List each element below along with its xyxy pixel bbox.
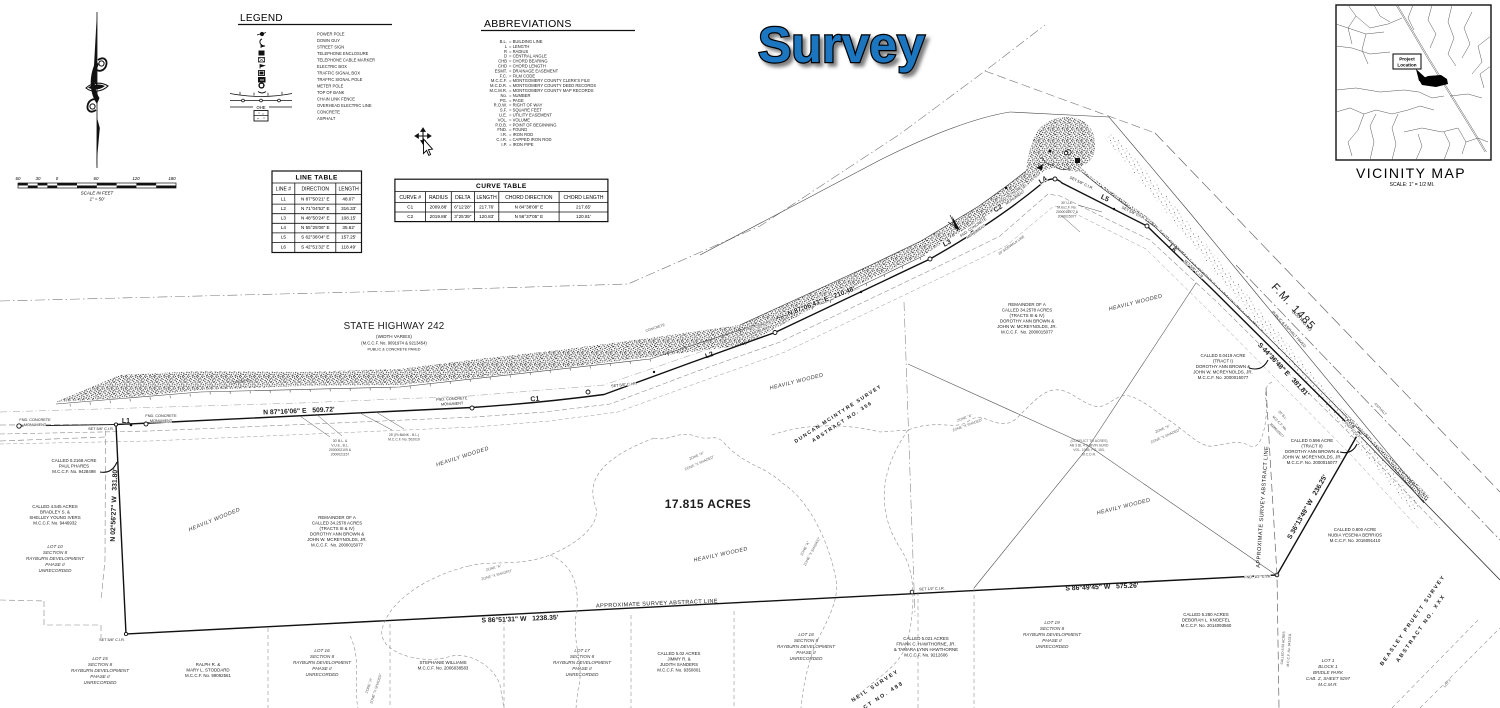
svg-text:V.U.E., B.L.: V.U.E., B.L. xyxy=(331,444,348,448)
svg-text:M.C.C.F. No. 2000015077: M.C.C.F. No. 2000015077 xyxy=(1001,330,1054,335)
svg-text:LINE #: LINE # xyxy=(276,187,292,193)
svg-text:N 55°25'06" E: N 55°25'06" E xyxy=(301,225,330,230)
svg-text:118.49': 118.49' xyxy=(341,244,356,249)
svg-text:REMAINDER OF A: REMAINDER OF A xyxy=(1008,302,1046,307)
svg-text:TOP OF BANK: TOP OF BANK xyxy=(317,90,345,95)
svg-text:(TRACT I): (TRACT I) xyxy=(1213,359,1233,364)
svg-text:TELEPHONE CABLE MARKER: TELEPHONE CABLE MARKER xyxy=(317,58,375,63)
svg-text:SCALE IN FEET: SCALE IN FEET xyxy=(81,191,114,196)
svg-text:M.C.C.F. No. 9350801: M.C.C.F. No. 9350801 xyxy=(657,668,701,673)
svg-text:M.C.C.F. No. 9212606: M.C.C.F. No. 9212606 xyxy=(904,653,948,658)
svg-text:CHAIN LINK FENCE: CHAIN LINK FENCE xyxy=(317,97,355,102)
svg-text:FRANK C. HAWTHORNE, JR.: FRANK C. HAWTHORNE, JR. xyxy=(896,642,955,647)
svg-text:Project: Project xyxy=(1399,57,1415,62)
svg-text:C1: C1 xyxy=(530,396,540,404)
svg-text:CAB. Z, SHEET 9297: CAB. Z, SHEET 9297 xyxy=(1306,676,1351,681)
svg-text:30' U.E.: 30' U.E. xyxy=(1061,201,1073,205)
svg-text:M.C.C.F. No. 2000015077: M.C.C.F. No. 2000015077 xyxy=(311,543,364,548)
svg-text:120.81': 120.81' xyxy=(576,214,591,219)
svg-text:2000002109 &: 2000002109 & xyxy=(329,448,352,452)
svg-text:ZONE "A": ZONE "A" xyxy=(486,564,503,572)
svg-text:CALLED 0.800 ACRE: CALLED 0.800 ACRE xyxy=(1334,527,1377,532)
svg-text:PHASE II: PHASE II xyxy=(1042,638,1062,643)
svg-text:L2: L2 xyxy=(704,351,714,360)
svg-text:AB 3 BL 4 S IRVIN SURD: AB 3 BL 4 S IRVIN SURD xyxy=(1070,444,1109,448)
svg-text:HEAVILY WOODED: HEAVILY WOODED xyxy=(1096,497,1151,516)
svg-text:JOHN W. MCREYNOLDS, JR.: JOHN W. MCREYNOLDS, JR. xyxy=(1282,455,1342,460)
svg-text:BEASLEY PRUETT SURVEY: BEASLEY PRUETT SURVEY xyxy=(1379,574,1447,667)
svg-text:LINE TABLE: LINE TABLE xyxy=(296,175,339,182)
svg-text:L2: L2 xyxy=(281,206,287,211)
svg-text:FND. CONCRETE: FND. CONCRETE xyxy=(436,396,468,402)
svg-text:JUDITH SANDERS: JUDITH SANDERS xyxy=(660,662,698,667)
svg-text:RAYBURN DEVELOPMENT: RAYBURN DEVELOPMENT xyxy=(71,668,130,673)
svg-text:ASPHALT: ASPHALT xyxy=(1373,402,1388,417)
svg-text:25' (R=BANK - B.L.): 25' (R=BANK - B.L.) xyxy=(389,433,419,437)
svg-text:C2: C2 xyxy=(407,214,413,219)
svg-text:FND. 1/2" C.I.R.: FND. 1/2" C.I.R. xyxy=(1244,575,1271,580)
svg-text:RALPH R. &: RALPH R. & xyxy=(196,662,220,667)
svg-text:DOWN GUY: DOWN GUY xyxy=(317,38,340,43)
svg-text:M.C.C.F. No. 2016091410: M.C.C.F. No. 2016091410 xyxy=(1330,538,1381,543)
svg-text:M.C.C.F. No. 2000015077: M.C.C.F. No. 2000015077 xyxy=(1287,460,1338,465)
svg-text:BLOCK 1: BLOCK 1 xyxy=(1318,664,1338,669)
svg-text:UNRECORDED: UNRECORDED xyxy=(84,680,118,685)
svg-text:RAYBURN DEVELOPMENT: RAYBURN DEVELOPMENT xyxy=(26,556,85,561)
svg-text:FND. CONCRETE: FND. CONCRETE xyxy=(145,414,177,418)
svg-text:60: 60 xyxy=(94,176,99,181)
svg-text:M.C.C.F. No. 2000015077: M.C.C.F. No. 2000015077 xyxy=(1198,375,1249,380)
svg-text:DOROTHY ANN BROWN &: DOROTHY ANN BROWN & xyxy=(1285,449,1339,454)
svg-text:RAYBURN DEVELOPMENT: RAYBURN DEVELOPMENT xyxy=(777,644,836,649)
svg-text:S 62°36'04" E: S 62°36'04" E xyxy=(301,235,329,240)
svg-text:48.07': 48.07' xyxy=(342,196,354,201)
svg-text:MONUMENT: MONUMENT xyxy=(24,423,47,427)
svg-text:RAYBURN DEVELOPMENT: RAYBURN DEVELOPMENT xyxy=(293,660,352,665)
svg-text:1" = 50': 1" = 50' xyxy=(90,197,105,202)
svg-text:PUBLIC & CONCRETE PAVED: PUBLIC & CONCRETE PAVED xyxy=(367,348,420,352)
svg-text:N 84°38'08" E: N 84°38'08" E xyxy=(515,205,544,210)
svg-text:M.C.C.F. No.: M.C.C.F. No. xyxy=(1057,206,1076,210)
svg-text:Survey: Survey xyxy=(758,17,925,73)
svg-text:LOT 19: LOT 19 xyxy=(1044,620,1060,625)
svg-text:CALLED 0.0419 ACRE: CALLED 0.0419 ACRE xyxy=(1201,353,1246,358)
svg-text:POWER POLE: POWER POLE xyxy=(317,32,345,37)
svg-text:UNRECORDED: UNRECORDED xyxy=(790,656,824,661)
svg-text:TRAFFIC SIGNAL POLE: TRAFFIC SIGNAL POLE xyxy=(317,77,363,82)
svg-text:CALLED 5.280 ACRES: CALLED 5.280 ACRES xyxy=(1183,612,1228,617)
svg-text:VICINITY MAP: VICINITY MAP xyxy=(1356,165,1466,181)
svg-text:60: 60 xyxy=(16,176,21,181)
svg-text:N 71°04'52" E: N 71°04'52" E xyxy=(301,206,330,211)
svg-text:STREET SIGN: STREET SIGN xyxy=(317,45,344,50)
svg-text:STEPHANIE WILLIAMS: STEPHANIE WILLIAMS xyxy=(419,660,466,665)
svg-text:SET 5/8" C.I.R.: SET 5/8" C.I.R. xyxy=(99,638,125,642)
svg-text:SECTION 8: SECTION 8 xyxy=(1040,626,1065,631)
svg-text:M.C.C.F. No. 9410311: M.C.C.F. No. 9410311 xyxy=(1286,633,1292,667)
svg-text:ABBREVIATIONS: ABBREVIATIONS xyxy=(484,18,572,30)
svg-text:LEGEND: LEGEND xyxy=(240,13,283,24)
svg-text:CALLED 34.2578 ACRES: CALLED 34.2578 ACRES xyxy=(312,521,362,526)
svg-text:2000015077: 2000015077 xyxy=(1058,215,1077,219)
svg-text:L1: L1 xyxy=(122,418,130,425)
svg-text:CALLED 0.596 ACRE: CALLED 0.596 ACRE xyxy=(1291,438,1334,443)
svg-text:PHASE II: PHASE II xyxy=(312,666,332,671)
svg-text:N 02°56'27" W 331.80': N 02°56'27" W 331.80' xyxy=(109,468,120,542)
svg-text:L5: L5 xyxy=(281,235,287,240)
svg-text:157.25': 157.25' xyxy=(341,235,356,240)
svg-text:2000021157: 2000021157 xyxy=(331,453,350,457)
svg-text:DOROTHY ANN BROWN &: DOROTHY ANN BROWN & xyxy=(310,532,364,537)
svg-text:L1: L1 xyxy=(281,196,287,201)
svg-text:SET 5/8" C.I.R.: SET 5/8" C.I.R. xyxy=(88,427,114,431)
svg-text:N 87°50'21" E: N 87°50'21" E xyxy=(301,196,330,201)
svg-text:DOROTHY ANN BROWN &: DOROTHY ANN BROWN & xyxy=(1000,319,1054,324)
svg-text:& TAMARA LYNN HAWTHORNE: & TAMARA LYNN HAWTHORNE xyxy=(894,647,958,652)
svg-text:BRADLEY S. &: BRADLEY S. & xyxy=(40,510,70,515)
svg-text:(TRACTS III & IV): (TRACTS III & IV) xyxy=(1010,313,1045,318)
svg-text:METER POLE: METER POLE xyxy=(317,84,344,89)
svg-text:LOT 15: LOT 15 xyxy=(92,656,108,661)
svg-text:L3: L3 xyxy=(281,216,287,221)
svg-text:OVERHEAD ELECTRIC LINE: OVERHEAD ELECTRIC LINE xyxy=(317,103,372,108)
svg-text:HEAVILY WOODED: HEAVILY WOODED xyxy=(188,507,241,533)
svg-text:6°12'28": 6°12'28" xyxy=(454,205,471,210)
svg-text:APPROXIMATE SURVEY ABSTRACT: APPROXIMATE SURVEY ABSTRACT LINE xyxy=(596,599,718,610)
svg-text:S 36°13'49" W 236.25': S 36°13'49" W 236.25' xyxy=(1286,473,1330,541)
svg-text:MARY L. STODDARD: MARY L. STODDARD xyxy=(186,668,229,673)
svg-text:L4: L4 xyxy=(281,225,287,230)
svg-text:MONUMENT: MONUMENT xyxy=(150,419,173,423)
svg-text:(M.C.C.F. No. 9091974 & 921345: (M.C.C.F. No. 9091974 & 9213454) xyxy=(361,341,427,346)
svg-text:PHASE II: PHASE II xyxy=(572,666,592,671)
svg-text:LENGTH: LENGTH xyxy=(476,195,497,201)
svg-text:I.P.: I.P. xyxy=(501,142,507,147)
svg-text:2000015077 &: 2000015077 & xyxy=(1056,210,1079,214)
svg-text:M.C.C.F. No. 9446932: M.C.C.F. No. 9446932 xyxy=(33,521,77,526)
svg-text:SECTION 8: SECTION 8 xyxy=(570,654,595,659)
svg-text:RAYBURN DEVELOPMENT: RAYBURN DEVELOPMENT xyxy=(553,660,612,665)
svg-text:FND. CONCRETE: FND. CONCRETE xyxy=(19,418,51,422)
svg-text:30' B.L. &: 30' B.L. & xyxy=(333,439,348,443)
svg-text:CONCRETE: CONCRETE xyxy=(645,323,666,333)
svg-text:BRIDLE PARK: BRIDLE PARK xyxy=(1313,670,1344,675)
svg-text:CHORD LENGTH: CHORD LENGTH xyxy=(563,195,603,201)
svg-text:LOT 10: LOT 10 xyxy=(47,544,63,549)
svg-text:108.15': 108.15' xyxy=(341,216,356,221)
svg-text:RADIUS: RADIUS xyxy=(429,195,449,201)
svg-text:HEAVILY WOODED: HEAVILY WOODED xyxy=(769,372,824,391)
svg-text:SCALE: 1" = 1/2 MI.: SCALE: 1" = 1/2 MI. xyxy=(1390,182,1435,188)
svg-text:PHASE II: PHASE II xyxy=(796,650,816,655)
svg-text:M.C.C.F. No. 502019: M.C.C.F. No. 502019 xyxy=(388,438,420,442)
svg-text:ASPHALT: ASPHALT xyxy=(317,116,336,121)
svg-text:N 48°50'24" E: N 48°50'24" E xyxy=(301,216,330,221)
svg-text:180: 180 xyxy=(168,176,176,181)
svg-text:ZONE "X SHADED": ZONE "X SHADED" xyxy=(369,672,383,704)
svg-text:M.C.M.R.: M.C.M.R. xyxy=(1318,682,1337,687)
svg-text:CALLED 5.02 ACRES: CALLED 5.02 ACRES xyxy=(658,651,701,656)
svg-text:DEBORAH L. KNOEFEL: DEBORAH L. KNOEFEL xyxy=(1182,618,1231,623)
svg-text:NUBIA YESENIA BERRIOS: NUBIA YESENIA BERRIOS xyxy=(1328,533,1382,538)
svg-text:LOT 18: LOT 18 xyxy=(798,632,814,637)
svg-text:2009.86': 2009.86' xyxy=(430,205,448,210)
svg-text:UNRECORDED: UNRECORDED xyxy=(566,672,600,677)
svg-text:ELECTRIC BOX: ELECTRIC BOX xyxy=(317,64,347,69)
svg-text:DELTA: DELTA xyxy=(455,195,471,201)
svg-text:Location: Location xyxy=(1397,63,1416,68)
svg-text:SECTION 8: SECTION 8 xyxy=(310,654,335,659)
svg-text:217.65': 217.65' xyxy=(576,205,591,210)
svg-text:SECTION 8: SECTION 8 xyxy=(43,550,68,555)
svg-text:= IRON PIPE: = IRON PIPE xyxy=(509,142,534,147)
svg-text:LOT 2: LOT 2 xyxy=(1443,678,1452,688)
svg-text:APPROXIMATE SURVEY ABSTRACT: APPROXIMATE SURVEY ABSTRACT LINE xyxy=(1256,446,1271,568)
svg-text:17.815 ACRES: 17.815 ACRES xyxy=(665,497,751,511)
svg-text:CALLED 5.021 ACRES: CALLED 5.021 ACRES xyxy=(903,636,948,641)
svg-text:PHASE II: PHASE II xyxy=(45,562,65,567)
svg-text:CALLED 0.2168 ACRE: CALLED 0.2168 ACRE xyxy=(52,458,97,463)
svg-text:217.76': 217.76' xyxy=(479,205,494,210)
svg-text:20' SIDEWALK LINE: 20' SIDEWALK LINE xyxy=(997,234,1025,256)
svg-text:JOHN W. MCREYNOLDS, JR.: JOHN W. MCREYNOLDS, JR. xyxy=(307,537,367,542)
svg-text:(CONFLICT TO ACRES): (CONFLICT TO ACRES) xyxy=(1070,439,1107,443)
svg-text:MONUMENT: MONUMENT xyxy=(441,401,464,406)
svg-text:M.C.D.R.: M.C.D.R. xyxy=(1082,453,1096,457)
svg-text:30: 30 xyxy=(36,176,41,181)
svg-text:REMAINDER OF A: REMAINDER OF A xyxy=(318,515,356,520)
svg-text:TELEPHONE ENCLOSURE: TELEPHONE ENCLOSURE xyxy=(317,51,369,56)
svg-text:(TRACTS III & IV): (TRACTS III & IV) xyxy=(320,526,355,531)
svg-text:SECTION 8: SECTION 8 xyxy=(88,662,113,667)
svg-text:120.83': 120.83' xyxy=(479,214,494,219)
svg-text:120: 120 xyxy=(132,176,140,181)
svg-text:0: 0 xyxy=(56,176,59,181)
svg-text:C1: C1 xyxy=(407,205,413,210)
svg-text:DUNCAN MCINTYRE SURVEY: DUNCAN MCINTYRE SURVEY xyxy=(794,384,884,445)
svg-text:HEAVILY WOODED: HEAVILY WOODED xyxy=(1108,293,1163,312)
svg-text:PAUL PHARES: PAUL PHARES xyxy=(59,464,89,469)
svg-text:JOHN W. MCREYNOLDS, JR.: JOHN W. MCREYNOLDS, JR. xyxy=(1193,370,1253,375)
svg-text:VOL. 1035, PG. 153,: VOL. 1035, PG. 153, xyxy=(1073,448,1105,452)
svg-text:JOHN W. MCREYNOLDS, JR.: JOHN W. MCREYNOLDS, JR. xyxy=(997,324,1057,329)
svg-text:SECTION 8: SECTION 8 xyxy=(794,638,819,643)
svg-text:OHE: OHE xyxy=(256,105,265,110)
svg-text:TRAFFIC SIGNAL BOX: TRAFFIC SIGNAL BOX xyxy=(317,71,360,76)
svg-text:CURVE TABLE: CURVE TABLE xyxy=(476,183,527,190)
svg-text:STATE HIGHWAY 242: STATE HIGHWAY 242 xyxy=(344,321,445,332)
svg-text:L4: L4 xyxy=(1038,176,1049,186)
svg-text:SET 1/2" C.I.R.: SET 1/2" C.I.R. xyxy=(919,587,945,592)
svg-text:S 86°49'45" W 575.26': S 86°49'45" W 575.26' xyxy=(1065,582,1139,593)
svg-text:316.33': 316.33' xyxy=(341,206,356,211)
svg-text:CALLED 5.58 ACRES: CALLED 5.58 ACRES xyxy=(1280,631,1286,665)
svg-text:HEAVILY WOODED: HEAVILY WOODED xyxy=(435,446,489,469)
svg-text:M.C.C.F. No. 2014093560: M.C.C.F. No. 2014093560 xyxy=(1181,623,1232,628)
svg-text:DOROTHY ANN BROWN &: DOROTHY ANN BROWN & xyxy=(1196,364,1250,369)
svg-text:M.C.C.F. No. 9428498: M.C.C.F. No. 9428498 xyxy=(52,469,96,474)
svg-text:LENGTH: LENGTH xyxy=(338,187,359,193)
svg-text:M.C.C.F. No. 99092561: M.C.C.F. No. 99092561 xyxy=(185,673,231,678)
svg-text:RAYBURN DEVELOPMENT: RAYBURN DEVELOPMENT xyxy=(1023,632,1082,637)
svg-text:M.C.C.F. No. 2006038583: M.C.C.F. No. 2006038583 xyxy=(418,666,469,671)
svg-text:LOT 1: LOT 1 xyxy=(1322,658,1335,663)
svg-text:HEAVILY WOODED: HEAVILY WOODED xyxy=(693,546,748,563)
svg-text:LOT 16: LOT 16 xyxy=(314,648,330,653)
svg-text:CALLED 4.545 ACRES: CALLED 4.545 ACRES xyxy=(32,504,77,509)
svg-text:L6: L6 xyxy=(281,244,287,249)
svg-text:CHORD DIRECTION: CHORD DIRECTION xyxy=(505,195,553,201)
svg-text:3°25'39": 3°25'39" xyxy=(454,214,471,219)
svg-text:PHASE II: PHASE II xyxy=(90,674,110,679)
svg-text:JIMMY R. &: JIMMY R. & xyxy=(667,657,690,662)
svg-text:2019.86': 2019.86' xyxy=(430,214,448,219)
svg-text:S 42°51'32" E: S 42°51'32" E xyxy=(301,244,329,249)
svg-text:LOT 17: LOT 17 xyxy=(574,648,590,653)
svg-text:CONCRETE: CONCRETE xyxy=(317,110,340,115)
svg-text:(TRACT II): (TRACT II) xyxy=(1301,444,1323,449)
svg-text:UNRECORDED: UNRECORDED xyxy=(1036,644,1070,649)
svg-text:DIRECTION: DIRECTION xyxy=(302,187,330,193)
svg-text:UNRECORDED: UNRECORDED xyxy=(39,568,73,573)
svg-text:N 56°37'05" E: N 56°37'05" E xyxy=(515,214,544,219)
svg-text:CALLED 34.2578 ACRES: CALLED 34.2578 ACRES xyxy=(1002,308,1052,313)
svg-text:SHELLEY YOUNG IVERS: SHELLEY YOUNG IVERS xyxy=(29,515,80,520)
svg-text:UNRECORDED: UNRECORDED xyxy=(306,672,340,677)
svg-text:CURVE #: CURVE # xyxy=(399,195,421,201)
svg-text:(WIDTH VARIES): (WIDTH VARIES) xyxy=(376,334,412,339)
svg-text:35.62': 35.62' xyxy=(342,225,354,230)
